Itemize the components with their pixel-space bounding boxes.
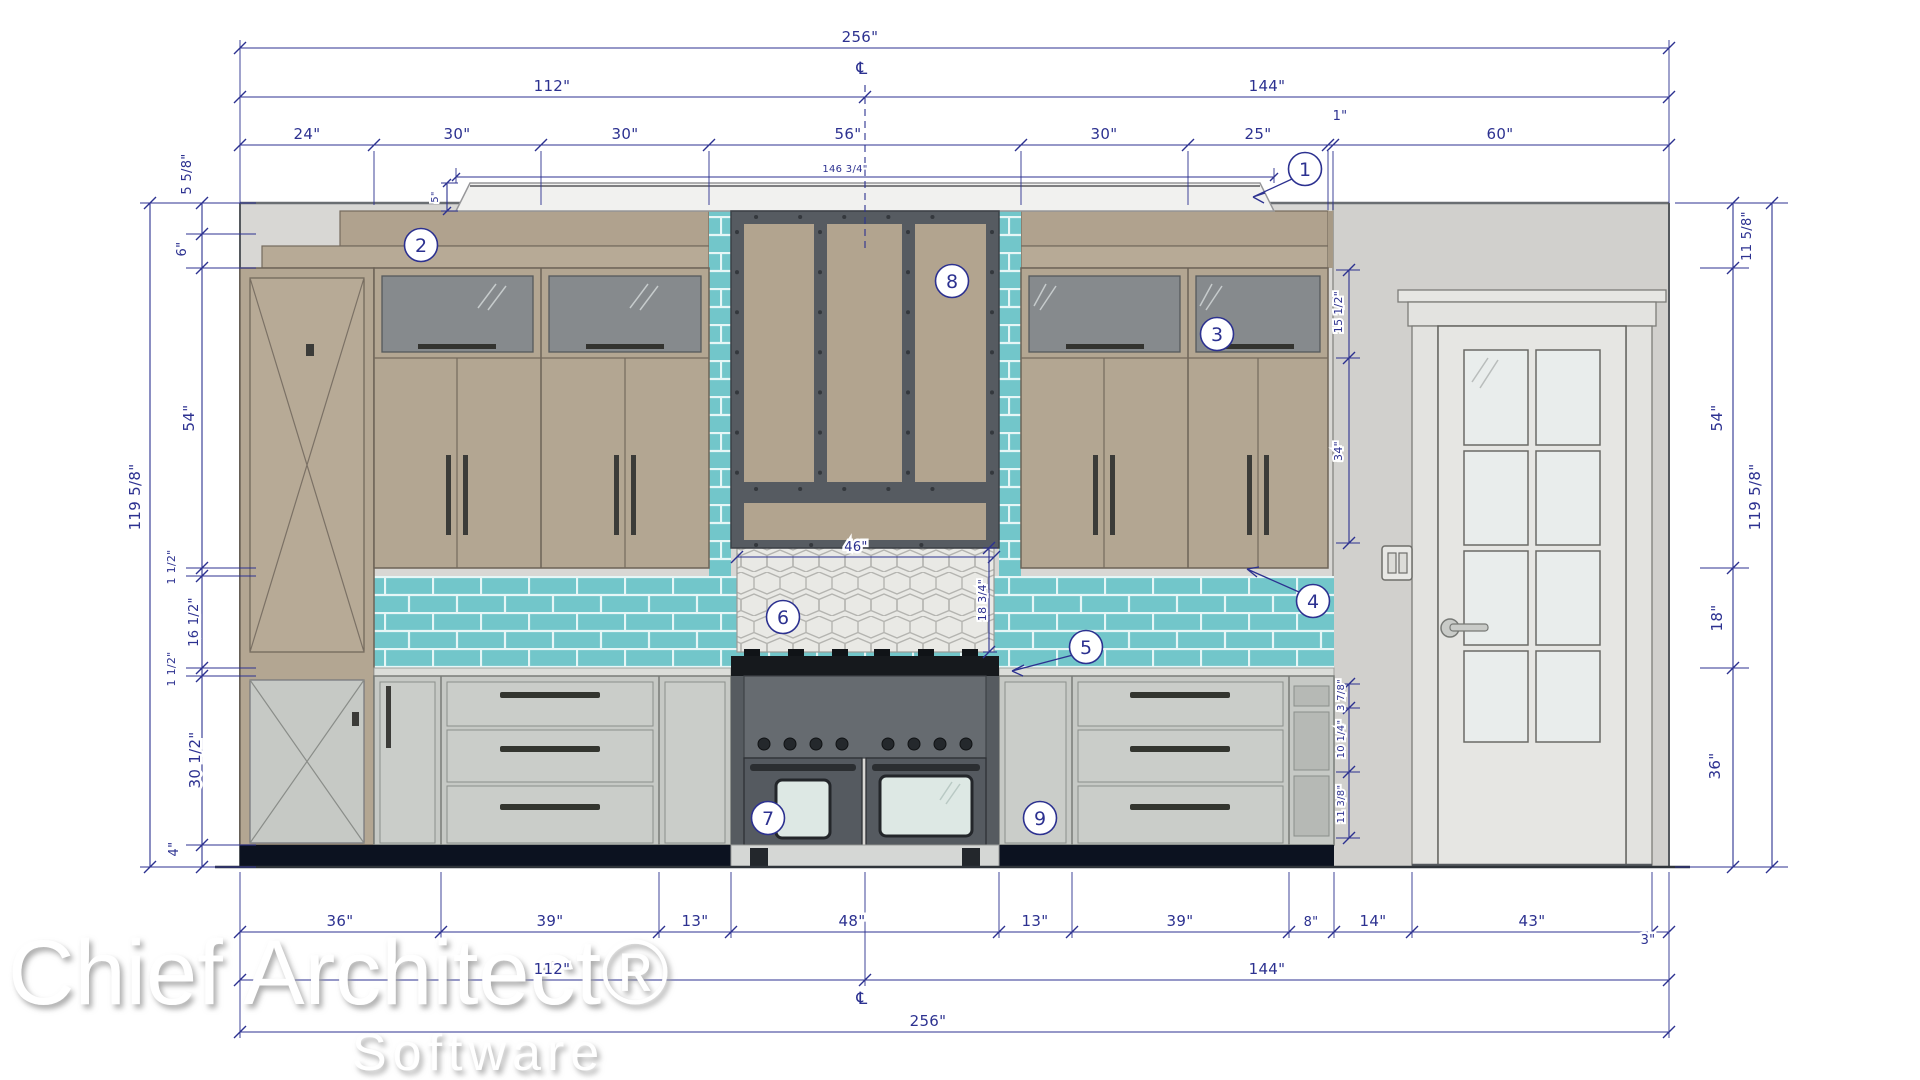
dim-right-seg[interactable]: 18" bbox=[1708, 605, 1726, 632]
dim-top-seg[interactable]: 30" bbox=[612, 125, 639, 143]
callout-label: 8 bbox=[946, 271, 958, 293]
dim-shelf-seg[interactable]: 10 1/4" bbox=[1336, 720, 1347, 759]
drawer-bank[interactable] bbox=[1078, 682, 1283, 843]
dim-left-overall[interactable]: 119 5/8" bbox=[126, 464, 144, 531]
glass-door[interactable] bbox=[1029, 276, 1180, 352]
hex-tile-panel[interactable] bbox=[737, 548, 994, 652]
watermark: Chief Architect® Software bbox=[8, 922, 669, 1080]
callout-label: 4 bbox=[1307, 591, 1319, 613]
callout-5[interactable]: 5 bbox=[1070, 631, 1103, 664]
dim-right-overall[interactable]: 119 5/8" bbox=[1746, 464, 1764, 531]
dim-top-seg[interactable]: 30" bbox=[1091, 125, 1118, 143]
dim-left-seg[interactable]: 16 1/2" bbox=[187, 597, 202, 647]
dim-bottom-right-half[interactable]: 144" bbox=[1249, 960, 1286, 978]
oven-window bbox=[880, 776, 972, 836]
watermark-product: Software bbox=[352, 1024, 605, 1080]
dim-cap-height[interactable]: 5" bbox=[430, 191, 441, 203]
dim-right-seg[interactable]: 11 5/8" bbox=[1740, 211, 1755, 261]
tall-cabinet[interactable] bbox=[240, 268, 374, 845]
callout-label: 2 bbox=[415, 235, 427, 257]
dim-bottom-seg[interactable]: 14" bbox=[1360, 912, 1387, 930]
glass-door[interactable] bbox=[382, 276, 533, 352]
dim-bottom-seg[interactable]: 8" bbox=[1304, 915, 1319, 930]
centerline-symbol-bottom: ℄ bbox=[855, 989, 867, 1009]
control-panel bbox=[744, 676, 986, 758]
callout-label: 1 bbox=[1299, 159, 1311, 181]
dim-bottom-seg[interactable]: 36" bbox=[327, 912, 354, 930]
dim-top-seg[interactable]: 1" bbox=[1333, 109, 1348, 124]
dim-bottom-seg[interactable]: 39" bbox=[537, 912, 564, 930]
dim-right-seg[interactable]: 54" bbox=[1708, 405, 1726, 432]
drawer-bank[interactable] bbox=[447, 682, 653, 843]
callout-4[interactable]: 4 bbox=[1297, 585, 1330, 618]
interior-door[interactable] bbox=[1398, 290, 1666, 865]
cooktop bbox=[731, 656, 999, 676]
dim-left-seg[interactable]: 30 1/2" bbox=[186, 732, 204, 789]
dim-shelf-seg[interactable]: 3 7/8" bbox=[1336, 679, 1347, 711]
dim-cabinet-seg[interactable]: 15 1/2" bbox=[1332, 291, 1345, 333]
door-pull bbox=[352, 712, 359, 726]
base-cabinets-left[interactable] bbox=[374, 676, 731, 845]
dim-top-overall[interactable]: 256" bbox=[842, 28, 879, 46]
callout-7[interactable]: 7 bbox=[752, 802, 785, 835]
callout-label: 9 bbox=[1034, 808, 1046, 830]
dim-backsplash-height[interactable]: 18 3/4" bbox=[976, 579, 989, 621]
callout-label: 5 bbox=[1080, 637, 1092, 659]
dim-left-seg[interactable]: 1 1/2" bbox=[165, 549, 178, 584]
callout-3[interactable]: 3 bbox=[1201, 318, 1234, 351]
dim-bottom-seg[interactable]: 43" bbox=[1519, 912, 1546, 930]
oven-window bbox=[776, 780, 830, 838]
callout-1[interactable]: 1 bbox=[1289, 153, 1322, 186]
door-pull bbox=[306, 344, 314, 356]
centerline-symbol-top: ℄ bbox=[855, 59, 867, 79]
dim-top-seg[interactable]: 25" bbox=[1245, 125, 1272, 143]
callout-9[interactable]: 9 bbox=[1024, 802, 1057, 835]
dim-bottom-left-half[interactable]: 112" bbox=[534, 960, 571, 978]
base-door[interactable] bbox=[665, 682, 725, 843]
dim-top-seg[interactable]: 56" bbox=[835, 125, 862, 143]
dim-bottom-seg[interactable]: 13" bbox=[1022, 912, 1049, 930]
glass-door[interactable] bbox=[549, 276, 701, 352]
dim-bottom-seg[interactable]: 3" bbox=[1641, 933, 1656, 948]
dim-bottom-seg[interactable]: 39" bbox=[1167, 912, 1194, 930]
dim-left-seg[interactable]: 1 1/2" bbox=[165, 651, 178, 686]
dim-right-seg[interactable]: 36" bbox=[1706, 753, 1724, 780]
dim-shelf-seg[interactable]: 11 3/8" bbox=[1336, 785, 1347, 824]
dim-top-seg[interactable]: 30" bbox=[444, 125, 471, 143]
dim-top-left-half[interactable]: 112" bbox=[534, 77, 571, 95]
dim-left-seg[interactable]: 6" bbox=[175, 242, 190, 257]
dim-top-seg[interactable]: 60" bbox=[1487, 125, 1514, 143]
dim-cap-width[interactable]: 146 3/4" bbox=[822, 164, 867, 175]
light-switch[interactable] bbox=[1382, 546, 1412, 580]
dim-cabinet-seg[interactable]: 34" bbox=[1332, 441, 1345, 461]
dim-bottom-seg[interactable]: 48" bbox=[839, 912, 866, 930]
callout-label: 7 bbox=[762, 808, 774, 830]
dim-top-right-half[interactable]: 144" bbox=[1249, 77, 1286, 95]
callout-label: 6 bbox=[777, 607, 789, 629]
callout-2[interactable]: 2 bbox=[405, 229, 438, 262]
callout-label: 3 bbox=[1211, 324, 1223, 346]
dim-top-seg[interactable]: 24" bbox=[294, 125, 321, 143]
dim-bottom-overall[interactable]: 256" bbox=[910, 1012, 947, 1030]
dim-left-seg[interactable]: 54" bbox=[180, 405, 198, 432]
dim-backsplash-width[interactable]: 46" bbox=[844, 540, 867, 555]
filler-strip bbox=[1328, 211, 1333, 268]
dim-left-seg[interactable]: 4" bbox=[167, 842, 182, 857]
callout-6[interactable]: 6 bbox=[767, 601, 800, 634]
upper-cabinet-left-bank[interactable] bbox=[374, 268, 709, 568]
dim-left-seg[interactable]: 5 5/8" bbox=[180, 153, 195, 194]
range-hood[interactable] bbox=[731, 211, 999, 548]
upper-cabinet-right-bank[interactable] bbox=[1021, 268, 1328, 568]
dim-bottom-seg[interactable]: 13" bbox=[682, 912, 709, 930]
callout-8[interactable]: 8 bbox=[936, 265, 969, 298]
elevation-view: Chief Architect® Software 256" 112" 144"… bbox=[0, 0, 1920, 1080]
